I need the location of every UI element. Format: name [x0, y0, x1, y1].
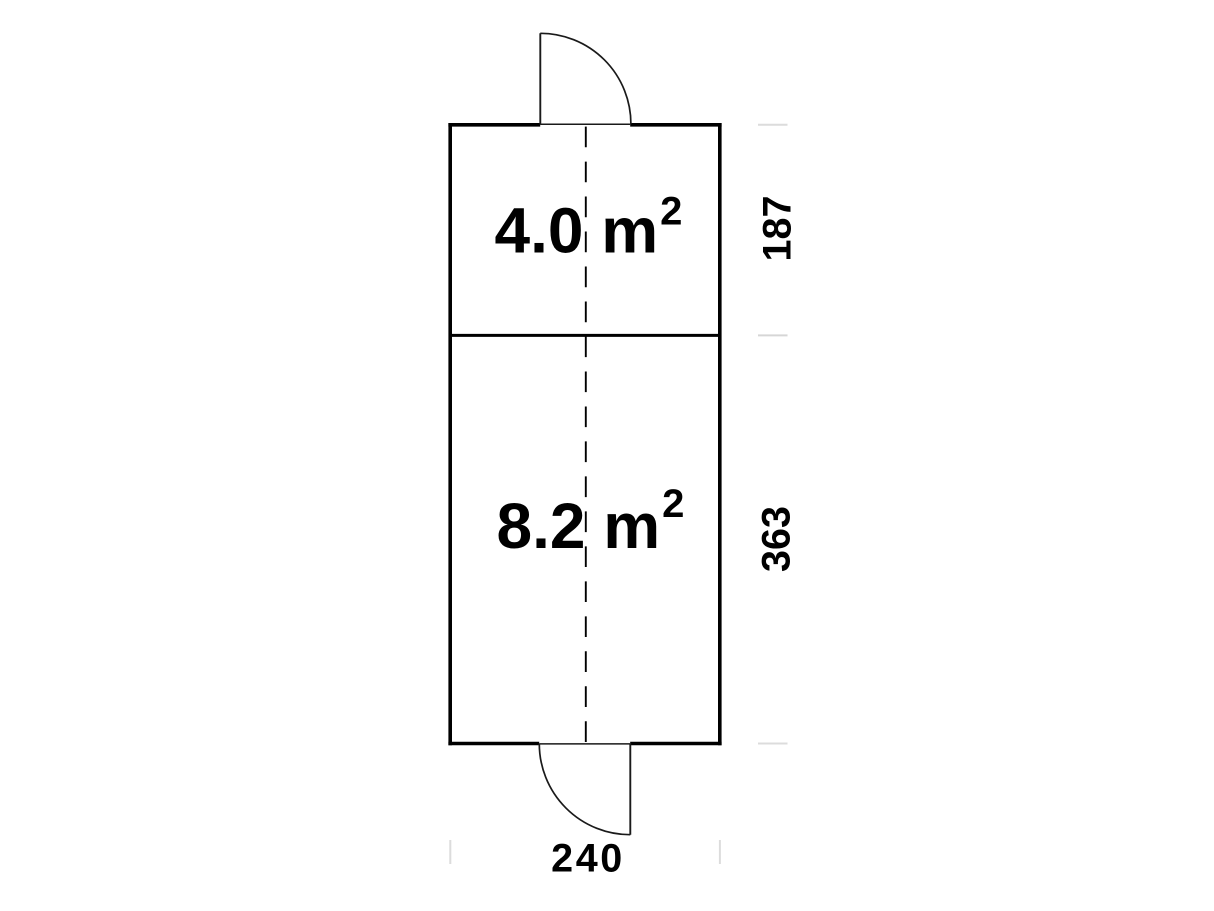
- svg-text:240: 240: [551, 836, 625, 880]
- svg-text:8.2 m2: 8.2 m2: [497, 482, 685, 562]
- svg-text:187: 187: [755, 196, 799, 262]
- svg-text:4.0 m2: 4.0 m2: [495, 190, 683, 267]
- svg-text:363: 363: [754, 506, 798, 572]
